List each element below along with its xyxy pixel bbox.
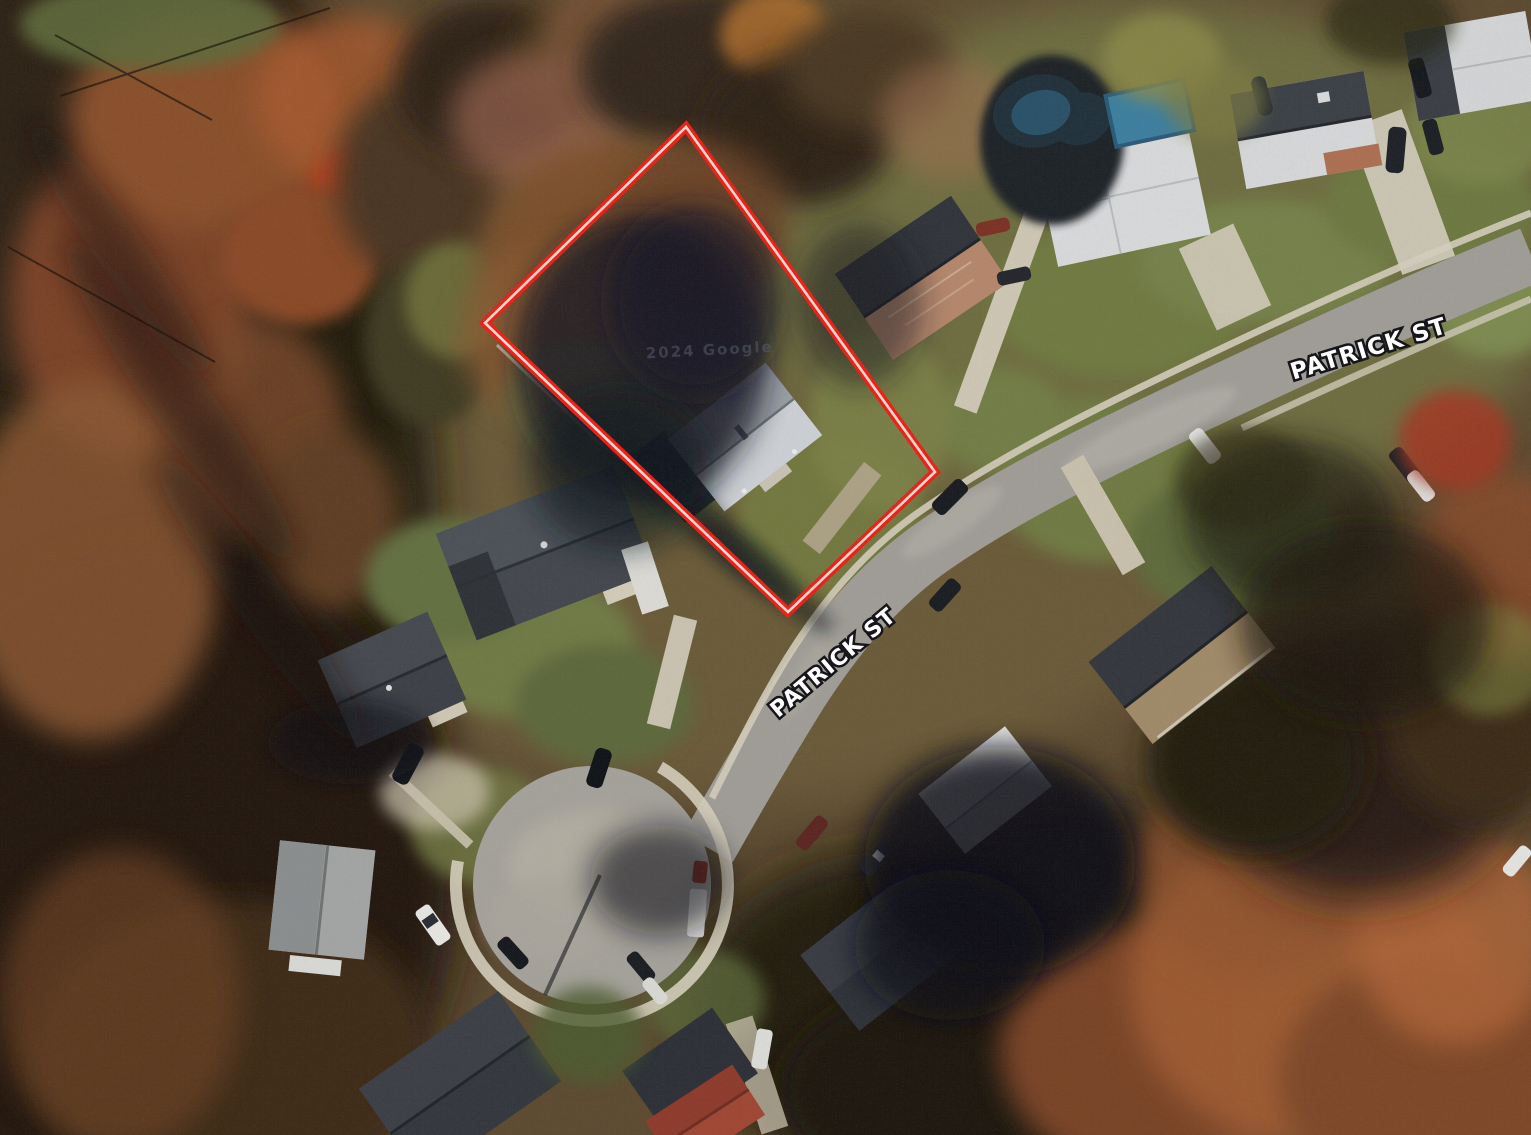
- image-grain: [0, 0, 1531, 1135]
- satellite-image: 2024 Google PATRICK ST PATRICK ST: [0, 0, 1531, 1135]
- map-viewport[interactable]: 2024 Google PATRICK ST PATRICK ST: [0, 0, 1531, 1135]
